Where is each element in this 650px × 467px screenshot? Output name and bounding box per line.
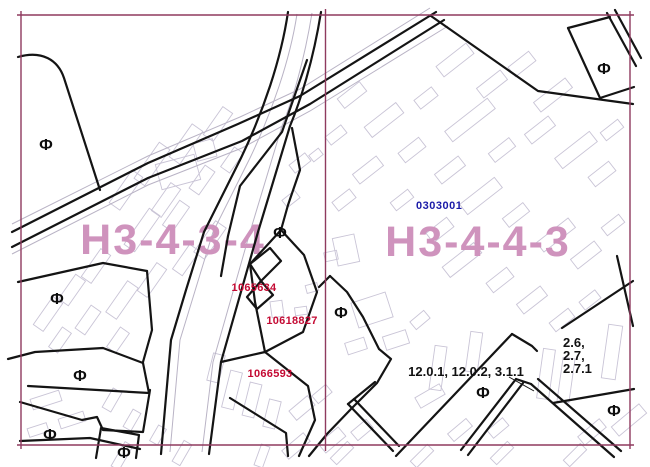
phi-marker: Ф: [607, 403, 621, 420]
phi-marker: Ф: [73, 368, 87, 385]
phi-marker: Ф: [273, 225, 287, 242]
phi-marker: Ф: [117, 445, 131, 462]
phi-marker: Ф: [39, 137, 53, 154]
phi-marker: Ф: [476, 385, 490, 402]
parcel-number-1: 1065634: [232, 282, 278, 294]
zoning-map-canvas: Н3-4-3-4 Н3-4-4-3 ИЗВИЛИСТЫЙ ПРОЕЗД 0303…: [0, 0, 650, 467]
phi-marker: Ф: [50, 291, 64, 308]
zone-label-right: Н3-4-4-3: [385, 218, 571, 266]
land-use-codes-label: 12.0.1, 12.0.2, 3.1.1: [408, 364, 524, 379]
zone-label-left: Н3-4-3-4: [80, 216, 266, 264]
phi-marker: Ф: [334, 305, 348, 322]
parcel-number-3: 1066593: [248, 368, 293, 380]
phi-marker: Ф: [597, 61, 611, 78]
parcel-number-2: 10618827: [266, 315, 317, 327]
map-viewport[interactable]: Н3-4-3-4 Н3-4-4-3 ИЗВИЛИСТЫЙ ПРОЕЗД 0303…: [0, 0, 650, 467]
cadastral-quarter-number: 0303001: [416, 200, 462, 212]
phi-marker: Ф: [43, 427, 57, 444]
land-use-codes-line-3: 2.7.1: [563, 361, 592, 376]
